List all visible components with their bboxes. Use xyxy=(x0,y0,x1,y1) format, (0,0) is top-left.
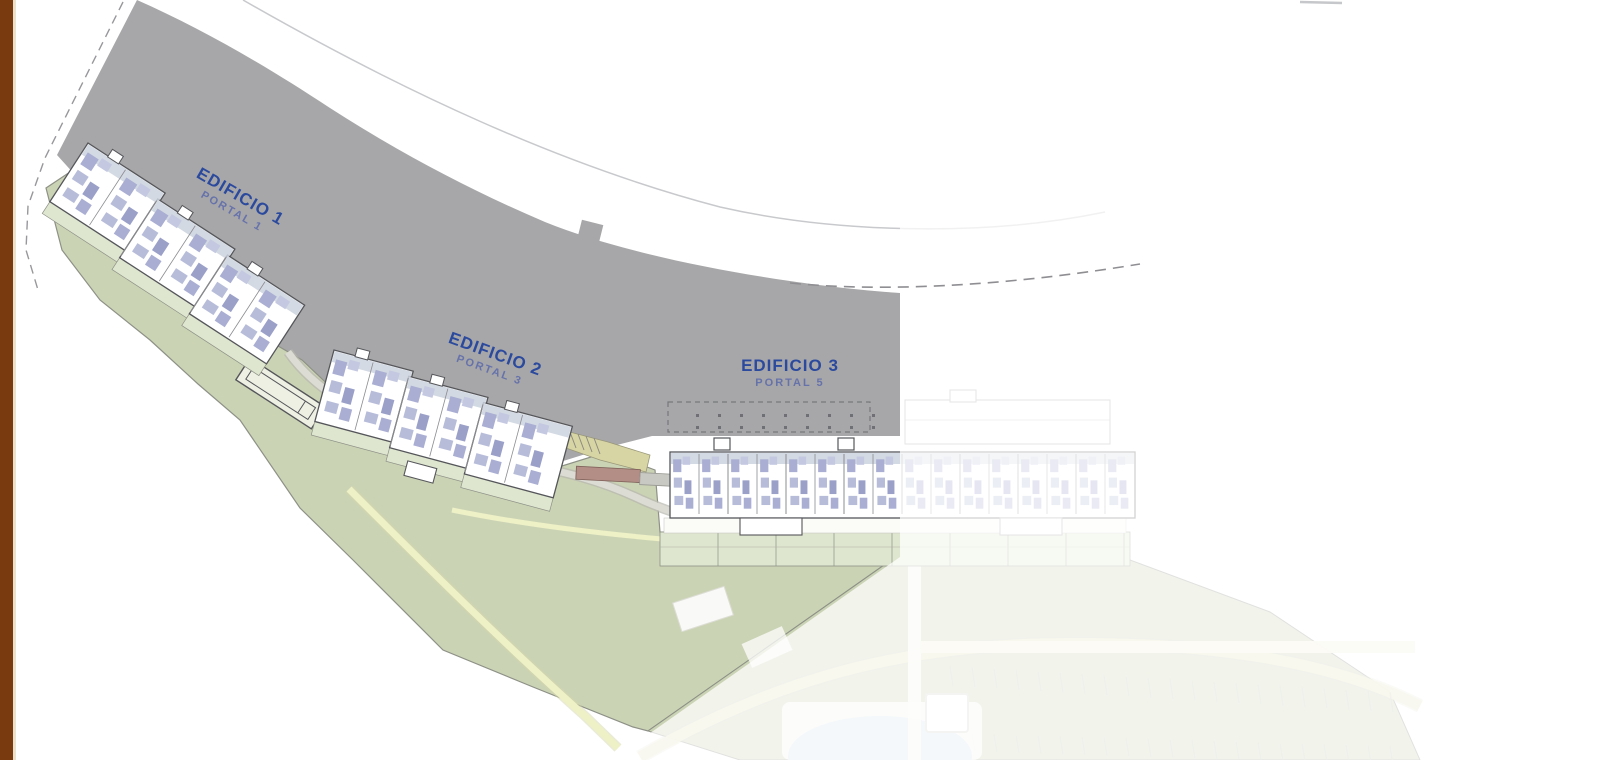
unit-furniture xyxy=(760,459,768,472)
column-dot xyxy=(850,426,853,429)
unit-furniture xyxy=(876,459,884,472)
unit-furniture xyxy=(673,459,681,472)
unit-furniture xyxy=(886,457,894,465)
unit-furniture xyxy=(770,457,778,465)
unit-furniture xyxy=(857,457,865,465)
unit-furniture xyxy=(830,480,837,494)
unit-furniture xyxy=(790,496,799,505)
site-plan-canvas xyxy=(0,0,1620,760)
building-3-entry-squares xyxy=(714,438,854,450)
column-dot xyxy=(872,426,875,429)
unit-furniture xyxy=(714,480,721,494)
column-dot xyxy=(696,426,699,429)
unit-furniture xyxy=(674,496,683,505)
unit-furniture xyxy=(761,496,770,505)
unit-furniture xyxy=(877,478,885,488)
column-dot xyxy=(828,426,831,429)
column-dot xyxy=(718,426,721,429)
unit-furniture xyxy=(799,457,807,465)
column-dot xyxy=(806,426,809,429)
unit-furniture xyxy=(703,496,712,505)
unit-furniture xyxy=(819,478,827,488)
column-dot xyxy=(806,414,809,417)
column-dot xyxy=(784,426,787,429)
unit-furniture xyxy=(712,457,720,465)
unit-furniture xyxy=(685,480,692,494)
unit-furniture xyxy=(859,480,866,494)
unit-furniture xyxy=(802,498,810,509)
unit-furniture xyxy=(819,496,828,505)
column-dot xyxy=(850,414,853,417)
site-plan-image: EDIFICIO 1 PORTAL 1 EDIFICIO 2 PORTAL 3 … xyxy=(0,0,1620,760)
unit-furniture xyxy=(686,498,694,509)
unit-furniture xyxy=(674,478,682,488)
unit-furniture xyxy=(847,459,855,472)
column-dot xyxy=(740,414,743,417)
left-border-stripe-edge xyxy=(13,0,16,760)
unit-furniture xyxy=(702,459,710,472)
unit-furniture xyxy=(683,457,691,465)
unit-furniture xyxy=(889,498,897,509)
column-dot xyxy=(828,414,831,417)
column-dot xyxy=(740,426,743,429)
unit-furniture xyxy=(772,480,779,494)
unit-furniture xyxy=(732,496,741,505)
unit-furniture xyxy=(743,480,750,494)
unit-furniture xyxy=(715,498,723,509)
unit-furniture xyxy=(744,498,752,509)
unit-furniture xyxy=(860,498,868,509)
unit-furniture xyxy=(790,478,798,488)
unit-furniture xyxy=(828,457,836,465)
unit-furniture xyxy=(818,459,826,472)
building-3-stair-bump xyxy=(740,518,802,535)
unit-furniture xyxy=(703,478,711,488)
unit-furniture xyxy=(888,480,895,494)
unit-furniture xyxy=(789,459,797,472)
unit-furniture xyxy=(877,496,886,505)
column-dot xyxy=(762,426,765,429)
unit-furniture xyxy=(801,480,808,494)
column-dot xyxy=(696,414,699,417)
top-edge-dash xyxy=(1300,2,1342,3)
column-dot xyxy=(762,414,765,417)
unit-furniture xyxy=(831,498,839,509)
column-dot xyxy=(872,414,875,417)
unit-furniture xyxy=(761,478,769,488)
left-border-stripe xyxy=(0,0,13,760)
column-dot xyxy=(718,414,721,417)
unit-furniture xyxy=(773,498,781,509)
unit-furniture xyxy=(848,478,856,488)
unit-furniture xyxy=(848,496,857,505)
unit-furniture xyxy=(732,478,740,488)
unit-furniture xyxy=(741,457,749,465)
column-dot xyxy=(784,414,787,417)
unit-furniture xyxy=(731,459,739,472)
